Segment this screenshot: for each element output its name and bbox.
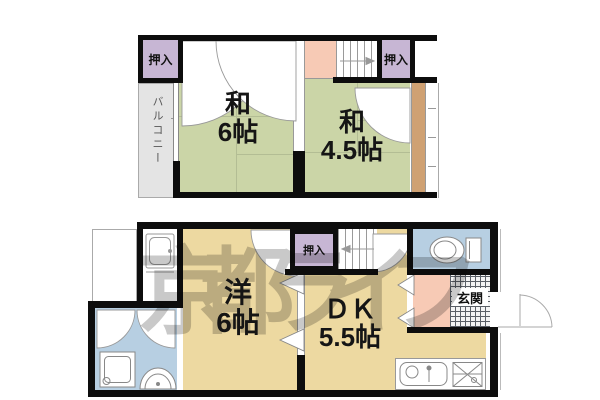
room-size: 6帖 xyxy=(218,118,258,146)
room-label-dk: ＤＫ 5.5帖 xyxy=(319,295,381,351)
window-line xyxy=(173,83,179,161)
closet-label: 押入 xyxy=(384,51,408,68)
dimension-tick xyxy=(428,166,436,167)
room-type: ＤＫ xyxy=(319,295,381,323)
entrance-label: 玄関 xyxy=(457,288,483,307)
floor-plan: バルコニー 押入 押入 和 6帖 和 4.5帖 xyxy=(0,0,600,400)
dimension-tick xyxy=(428,108,436,109)
outer-line xyxy=(500,229,501,292)
room-size: 4.5帖 xyxy=(321,136,383,164)
entrance-hall xyxy=(413,275,450,327)
kitchen-counter xyxy=(395,358,486,390)
wall xyxy=(407,327,498,333)
stairs-lower xyxy=(338,229,377,269)
wall xyxy=(407,269,498,275)
room-label-western-6: 洋 6帖 xyxy=(216,278,260,338)
outer-line xyxy=(438,83,439,198)
wall xyxy=(88,390,498,397)
toilet-room xyxy=(413,229,490,269)
closet-lower: 押入 xyxy=(290,229,338,271)
sliding-door-divider xyxy=(297,271,305,355)
wall xyxy=(177,222,183,308)
wall xyxy=(137,222,143,307)
room-type: 和 xyxy=(321,108,383,136)
room-label-japanese-45: 和 4.5帖 xyxy=(321,108,383,164)
wall xyxy=(173,161,180,192)
balcony-label: バルコニー xyxy=(149,96,165,191)
porch xyxy=(92,229,137,307)
stairs-upper xyxy=(336,41,377,77)
wall xyxy=(490,327,498,397)
wall xyxy=(297,355,305,390)
closet-upper-left: 押入 xyxy=(138,35,183,83)
room-size: 6帖 xyxy=(216,308,260,338)
entrance-label-box: 玄関 xyxy=(452,288,488,306)
room-size: 5.5帖 xyxy=(319,323,381,351)
wall xyxy=(173,192,437,198)
wall xyxy=(88,305,95,397)
side-corridor xyxy=(411,83,426,192)
closet-upper-right: 押入 xyxy=(377,35,415,83)
closet-label: 押入 xyxy=(148,51,172,68)
entrance-door-icon xyxy=(498,294,552,327)
outer-line xyxy=(500,333,501,390)
tatami-line xyxy=(236,154,293,155)
wall xyxy=(137,222,493,229)
wall xyxy=(407,222,413,275)
room-type: 和 xyxy=(218,90,258,118)
wall xyxy=(293,151,305,192)
room-label-japanese-6: 和 6帖 xyxy=(218,90,258,146)
wall xyxy=(88,301,183,308)
washroom xyxy=(95,308,177,390)
dimension-tick xyxy=(428,137,436,138)
closet-label: 押入 xyxy=(303,242,325,258)
bathroom xyxy=(143,229,177,307)
sliding-door-divider xyxy=(293,41,305,151)
wall xyxy=(490,222,498,292)
room-type: 洋 xyxy=(216,278,260,308)
